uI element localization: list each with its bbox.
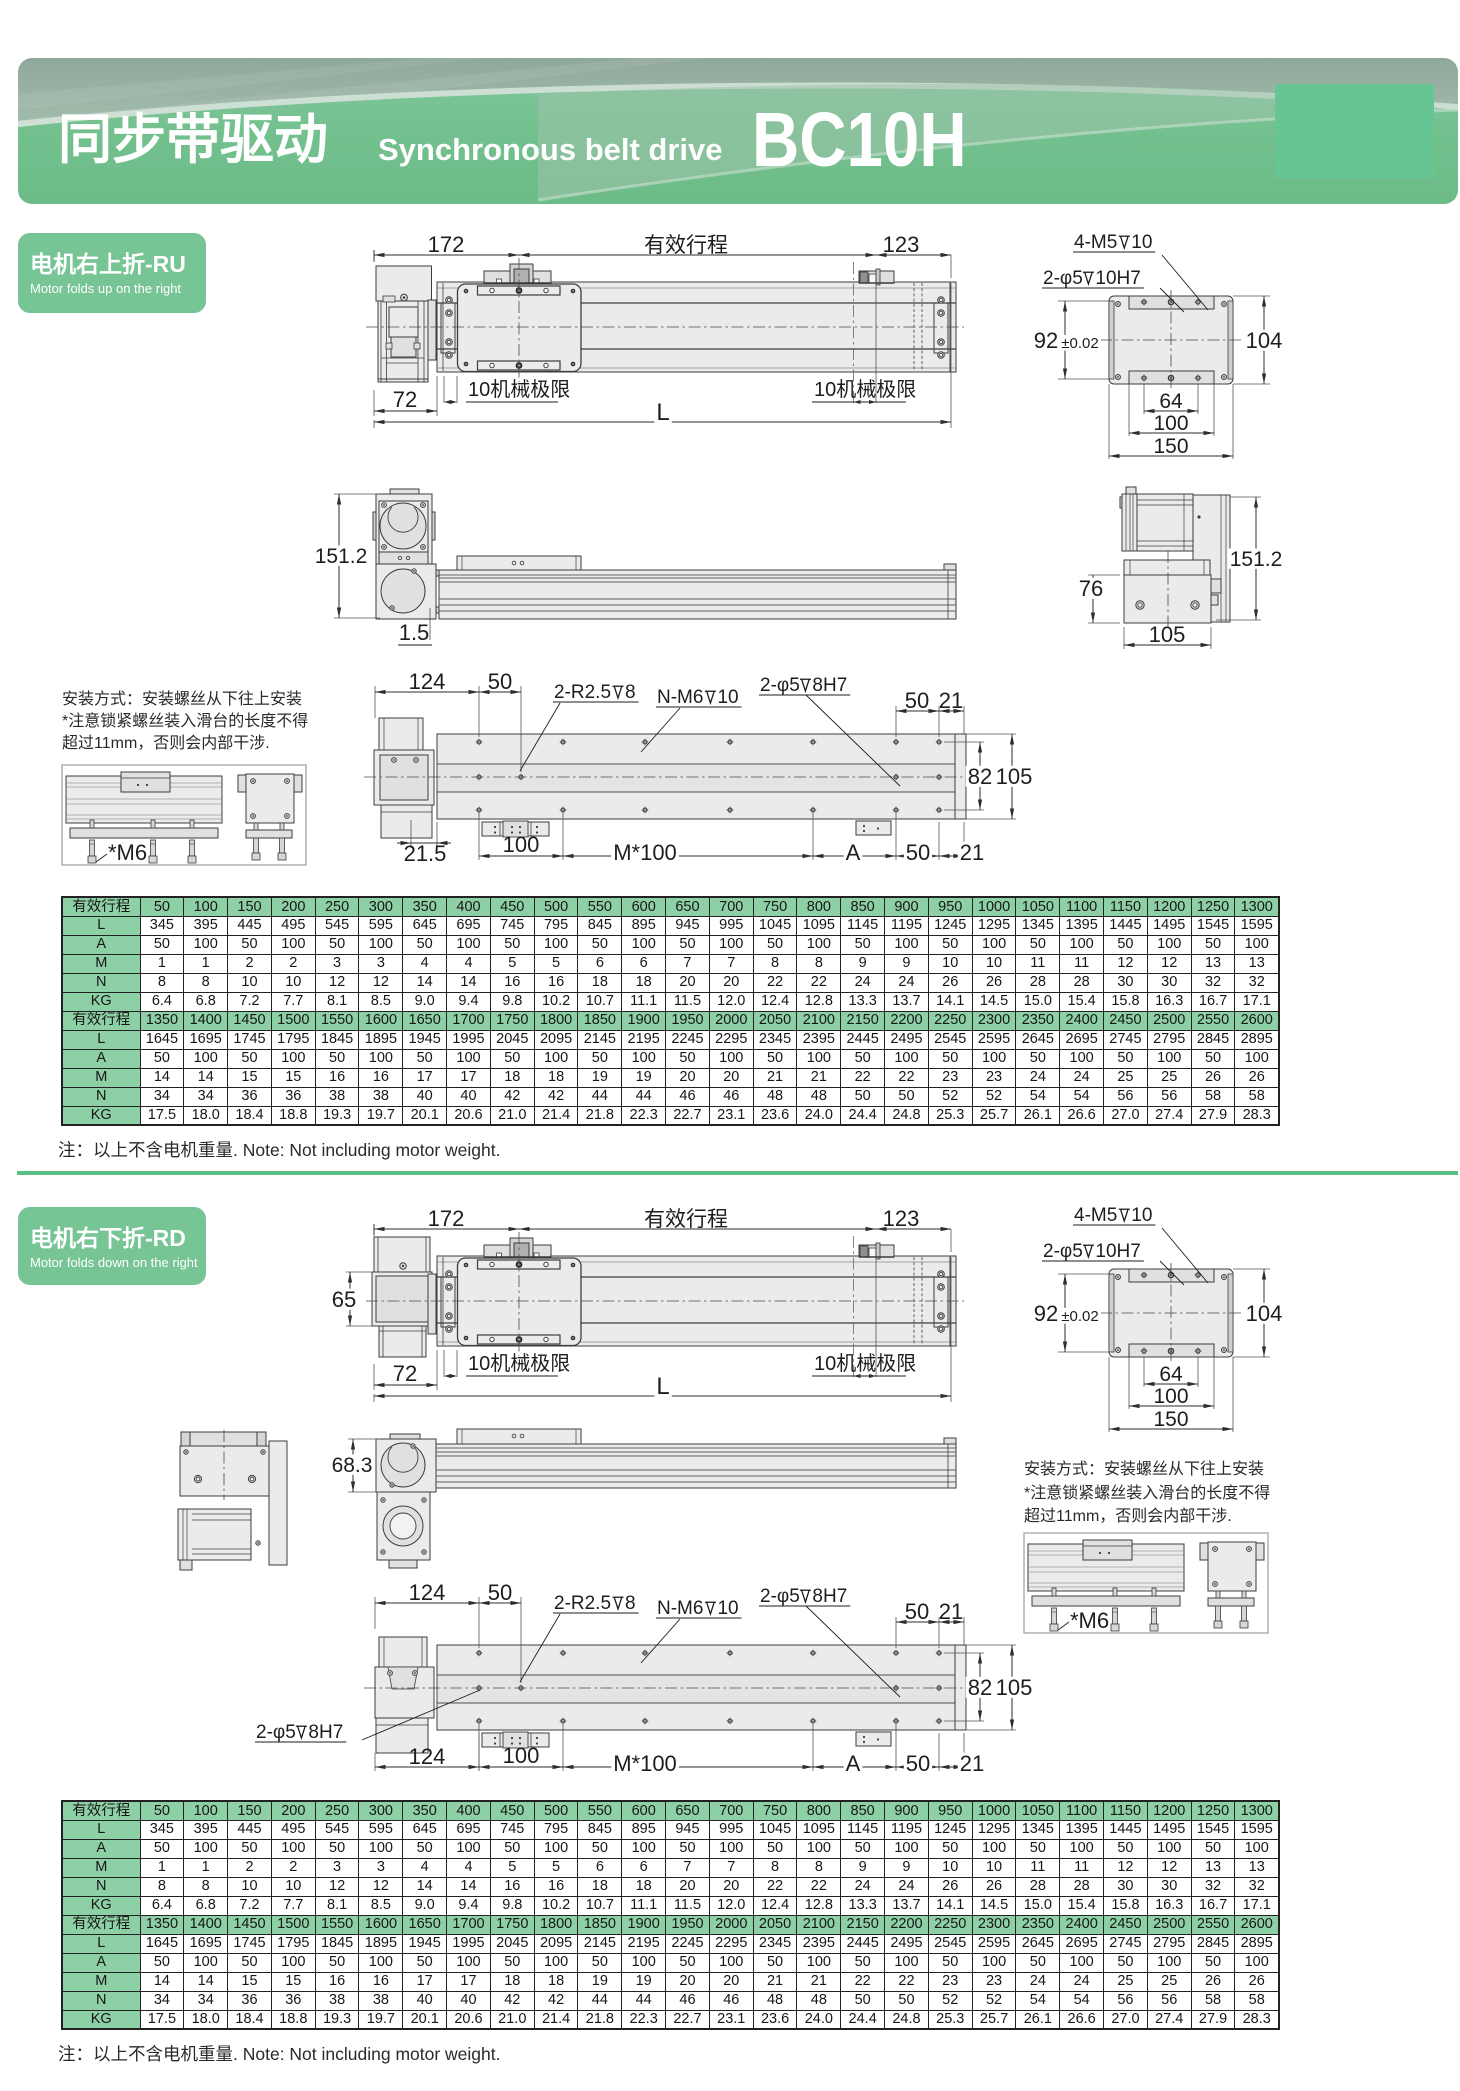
svg-text:8H7: 8H7 bbox=[308, 1722, 343, 1743]
svg-text:105: 105 bbox=[996, 764, 1033, 789]
svg-text:100: 100 bbox=[503, 832, 540, 857]
svg-text:10H7: 10H7 bbox=[1095, 1241, 1140, 1262]
svg-text:21: 21 bbox=[960, 1751, 984, 1776]
svg-text:50: 50 bbox=[905, 688, 929, 713]
svg-text:8: 8 bbox=[625, 1593, 636, 1614]
svg-text:65: 65 bbox=[332, 1287, 356, 1312]
svg-text:124: 124 bbox=[409, 1580, 446, 1605]
svg-text:±0.02: ±0.02 bbox=[1061, 335, 1098, 352]
svg-text:50: 50 bbox=[906, 840, 930, 865]
svg-text:105: 105 bbox=[996, 1675, 1033, 1700]
svg-text:10: 10 bbox=[1131, 1205, 1152, 1226]
svg-text:2-φ5: 2-φ5 bbox=[760, 1586, 800, 1607]
svg-text:64: 64 bbox=[1159, 1363, 1183, 1386]
svg-text:1.5: 1.5 bbox=[399, 620, 430, 645]
svg-text:M*100: M*100 bbox=[613, 840, 677, 865]
svg-text:123: 123 bbox=[883, 232, 920, 257]
svg-text:*M6: *M6 bbox=[108, 840, 147, 865]
svg-text:8: 8 bbox=[625, 682, 636, 703]
svg-text:50: 50 bbox=[488, 669, 512, 694]
svg-text:151.2: 151.2 bbox=[1230, 548, 1283, 571]
svg-text:10机械极限: 10机械极限 bbox=[468, 1352, 570, 1375]
svg-text:151.2: 151.2 bbox=[315, 545, 368, 568]
svg-text:72: 72 bbox=[393, 1361, 417, 1386]
svg-text:有效行程: 有效行程 bbox=[644, 1208, 728, 1231]
svg-text:有效行程: 有效行程 bbox=[644, 234, 728, 257]
svg-text:172: 172 bbox=[428, 232, 465, 257]
svg-text:76: 76 bbox=[1079, 576, 1103, 601]
svg-text:M*100: M*100 bbox=[613, 1751, 677, 1776]
svg-text:N-M6: N-M6 bbox=[657, 1598, 703, 1619]
svg-text:*M6: *M6 bbox=[1070, 1608, 1109, 1633]
svg-text:100: 100 bbox=[503, 1743, 540, 1768]
svg-text:10: 10 bbox=[717, 1598, 738, 1619]
svg-text:2-φ5: 2-φ5 bbox=[1043, 1241, 1083, 1262]
svg-text:8H7: 8H7 bbox=[812, 1586, 847, 1607]
svg-text:2-φ5: 2-φ5 bbox=[256, 1722, 296, 1743]
svg-text:2-φ5: 2-φ5 bbox=[760, 675, 800, 696]
svg-text:L: L bbox=[656, 399, 669, 426]
svg-text:50: 50 bbox=[488, 1580, 512, 1605]
svg-text:A: A bbox=[846, 840, 861, 865]
svg-text:L: L bbox=[656, 1373, 669, 1400]
svg-text:2-R2.5: 2-R2.5 bbox=[554, 682, 611, 703]
svg-text:10: 10 bbox=[1131, 232, 1152, 253]
svg-text:82: 82 bbox=[968, 764, 992, 789]
svg-text:A: A bbox=[846, 1751, 861, 1776]
svg-text:±0.02: ±0.02 bbox=[1061, 1308, 1098, 1325]
svg-text:N-M6: N-M6 bbox=[657, 687, 703, 708]
svg-text:8H7: 8H7 bbox=[812, 675, 847, 696]
svg-text:21.5: 21.5 bbox=[404, 841, 447, 866]
svg-text:72: 72 bbox=[393, 387, 417, 412]
svg-text:123: 123 bbox=[883, 1206, 920, 1231]
svg-text:10H7: 10H7 bbox=[1095, 268, 1140, 289]
svg-text:124: 124 bbox=[409, 669, 446, 694]
svg-text:172: 172 bbox=[428, 1206, 465, 1231]
svg-text:10机械极限: 10机械极限 bbox=[814, 1352, 916, 1375]
svg-text:4-M5: 4-M5 bbox=[1074, 232, 1117, 253]
svg-text:124: 124 bbox=[409, 1744, 446, 1769]
svg-text:21: 21 bbox=[960, 840, 984, 865]
svg-text:50: 50 bbox=[906, 1751, 930, 1776]
svg-text:104: 104 bbox=[1246, 328, 1283, 353]
svg-text:10: 10 bbox=[717, 687, 738, 708]
svg-text:150: 150 bbox=[1153, 1408, 1188, 1431]
svg-text:4-M5: 4-M5 bbox=[1074, 1205, 1117, 1226]
svg-text:104: 104 bbox=[1246, 1301, 1283, 1326]
svg-text:10机械极限: 10机械极限 bbox=[468, 378, 570, 401]
svg-text:2-φ5: 2-φ5 bbox=[1043, 268, 1083, 289]
svg-text:100: 100 bbox=[1153, 1385, 1188, 1408]
svg-text:10机械极限: 10机械极限 bbox=[814, 378, 916, 401]
svg-text:105: 105 bbox=[1149, 622, 1186, 647]
svg-text:50: 50 bbox=[905, 1599, 929, 1624]
svg-text:150: 150 bbox=[1153, 435, 1188, 458]
svg-text:21: 21 bbox=[939, 1599, 963, 1624]
svg-text:68.3: 68.3 bbox=[332, 1454, 373, 1477]
svg-text:2-R2.5: 2-R2.5 bbox=[554, 1593, 611, 1614]
svg-text:100: 100 bbox=[1153, 412, 1188, 435]
svg-text:21: 21 bbox=[939, 688, 963, 713]
svg-text:64: 64 bbox=[1159, 390, 1183, 413]
svg-text:82: 82 bbox=[968, 1675, 992, 1700]
svg-text:92: 92 bbox=[1034, 1301, 1058, 1326]
svg-text:92: 92 bbox=[1034, 328, 1058, 353]
